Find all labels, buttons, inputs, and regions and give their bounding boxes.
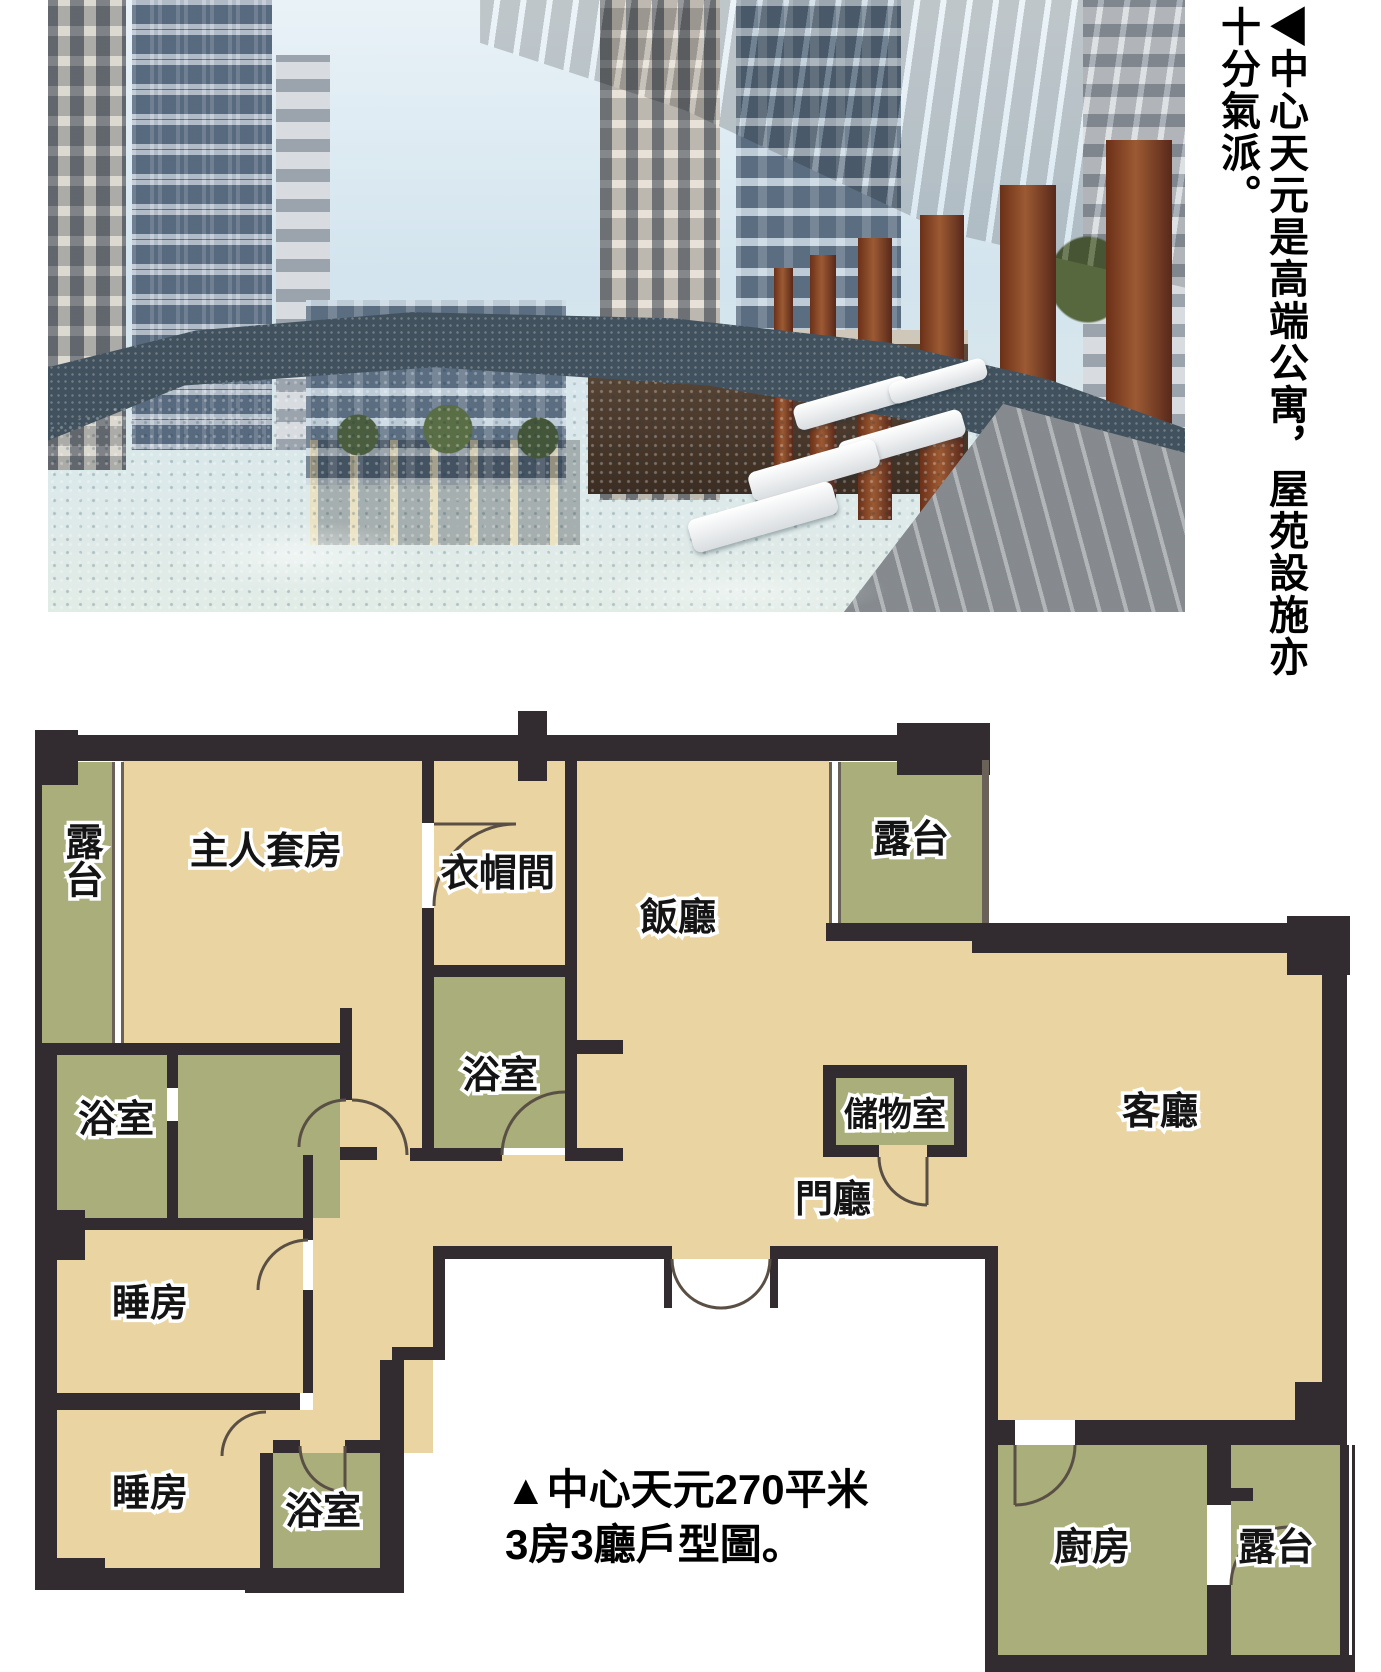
label-closet: 衣帽間: [441, 853, 555, 895]
railing: [121, 762, 124, 1043]
water-ripple-highlight: [168, 520, 428, 590]
plan-caption: ▲中心天元270平米 3房3廳戶型圖。: [505, 1462, 869, 1573]
pool-courtyard-photo: [48, 0, 1185, 612]
label-master-suite: 主人套房: [190, 831, 342, 873]
railing: [829, 762, 832, 923]
label-bath-2: 浴室: [285, 1490, 361, 1533]
label-balcony-left: 露台: [59, 822, 102, 898]
room-master-suite: [123, 760, 422, 1043]
railing: [112, 762, 115, 1043]
photo-caption-column-2: 十分氣派。: [1216, 6, 1258, 216]
entrance-door-right: [721, 1259, 770, 1308]
railing: [982, 760, 989, 923]
label-balcony-top-right: 露台: [873, 819, 949, 861]
balcony-left: [42, 762, 112, 1043]
label-balcony-bottom-right: 露台: [1238, 1527, 1314, 1569]
label-bedroom-1: 睡房: [112, 1283, 188, 1325]
label-foyer: 門廳: [795, 1179, 871, 1221]
bath-1-right: [178, 1055, 340, 1218]
label-bedroom-2: 睡房: [112, 1473, 188, 1515]
label-storage: 儲物室: [844, 1095, 946, 1134]
label-kitchen: 廚房: [1054, 1526, 1130, 1569]
label-bath-master: 浴室: [462, 1054, 538, 1097]
label-bath-1: 浴室: [78, 1098, 154, 1141]
plan-caption-line-2: 3房3廳戶型圖。: [505, 1517, 869, 1572]
railing: [838, 762, 841, 923]
plan-caption-line-1: ▲中心天元270平米: [505, 1462, 869, 1517]
label-living: 客廳: [1122, 1090, 1198, 1133]
hallway: [313, 1155, 985, 1246]
photo-caption-column-1: ◀中心天元是高端公寓，屋苑設施亦: [1264, 6, 1306, 678]
label-dining: 飯廳: [640, 897, 716, 939]
room-living: [985, 953, 1322, 1420]
entrance-door-left: [672, 1259, 721, 1308]
water-ripple-highlight: [588, 560, 888, 612]
newspaper-clipping: ◀中心天元是高端公寓，屋苑設施亦 十分氣派。: [0, 0, 1381, 1672]
